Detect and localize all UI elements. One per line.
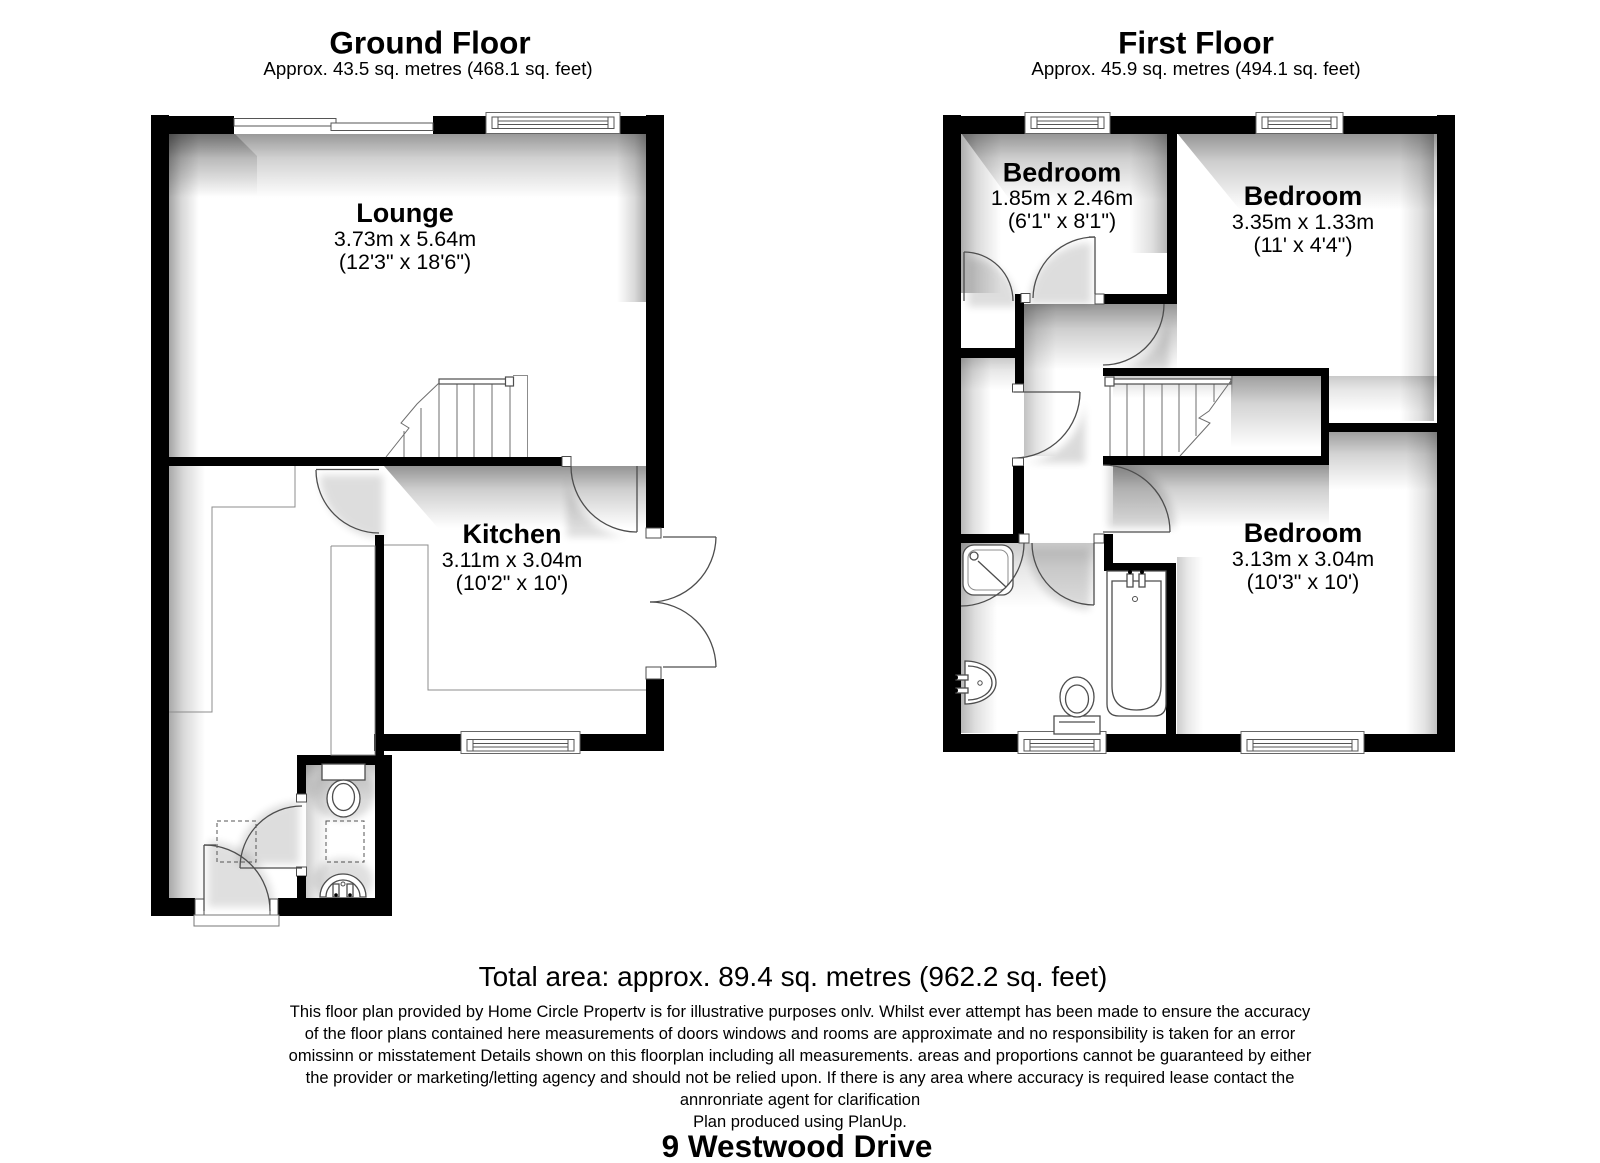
svg-text:Ground Floor: Ground Floor xyxy=(329,25,530,61)
svg-text:(6'1" x 8'1"): (6'1" x 8'1") xyxy=(1008,209,1116,233)
svg-text:(12'3" x 18'6"): (12'3" x 18'6") xyxy=(339,250,471,274)
svg-text:3.13m x 3.04m: 3.13m x 3.04m xyxy=(1232,547,1374,571)
svg-text:of the floor plans contained h: of the floor plans contained here measur… xyxy=(305,1025,1296,1043)
svg-text:Total area: approx. 89.4 sq. m: Total area: approx. 89.4 sq. metres (962… xyxy=(479,961,1108,992)
svg-text:(10'3" x 10'): (10'3" x 10') xyxy=(1247,570,1360,594)
svg-text:Bedroom: Bedroom xyxy=(1244,181,1363,211)
svg-text:Approx. 45.9 sq. metres (494.1: Approx. 45.9 sq. metres (494.1 sq. feet) xyxy=(1031,58,1360,79)
svg-text:This floor plan provided by Ho: This floor plan provided by Home Circle … xyxy=(290,1003,1311,1021)
svg-text:Bedroom: Bedroom xyxy=(1244,518,1363,548)
svg-text:(10'2" x 10'): (10'2" x 10') xyxy=(456,571,569,595)
svg-text:(11' x 4'4"): (11' x 4'4") xyxy=(1253,233,1352,257)
svg-text:9 Westwood Drive: 9 Westwood Drive xyxy=(662,1128,933,1163)
svg-text:annronriate agent for clarific: annronriate agent for clarification xyxy=(680,1091,920,1109)
svg-text:Kitchen: Kitchen xyxy=(462,519,561,549)
svg-text:1.85m x 2.46m: 1.85m x 2.46m xyxy=(991,186,1133,210)
svg-text:3.11m x 3.04m: 3.11m x 3.04m xyxy=(442,548,583,572)
svg-text:the provider or marketing/lett: the provider or marketing/letting agency… xyxy=(306,1069,1295,1087)
svg-text:3.35m x 1.33m: 3.35m x 1.33m xyxy=(1232,210,1374,234)
svg-text:Lounge: Lounge xyxy=(356,198,453,228)
svg-text:3.73m x 5.64m: 3.73m x 5.64m xyxy=(334,227,476,251)
svg-text:Approx. 43.5 sq. metres (468.1: Approx. 43.5 sq. metres (468.1 sq. feet) xyxy=(263,58,592,79)
svg-text:First Floor: First Floor xyxy=(1118,25,1274,61)
svg-text:Bedroom: Bedroom xyxy=(1003,158,1122,188)
svg-text:omissinn or misstatement Detai: omissinn or misstatement Details shown o… xyxy=(289,1047,1312,1065)
